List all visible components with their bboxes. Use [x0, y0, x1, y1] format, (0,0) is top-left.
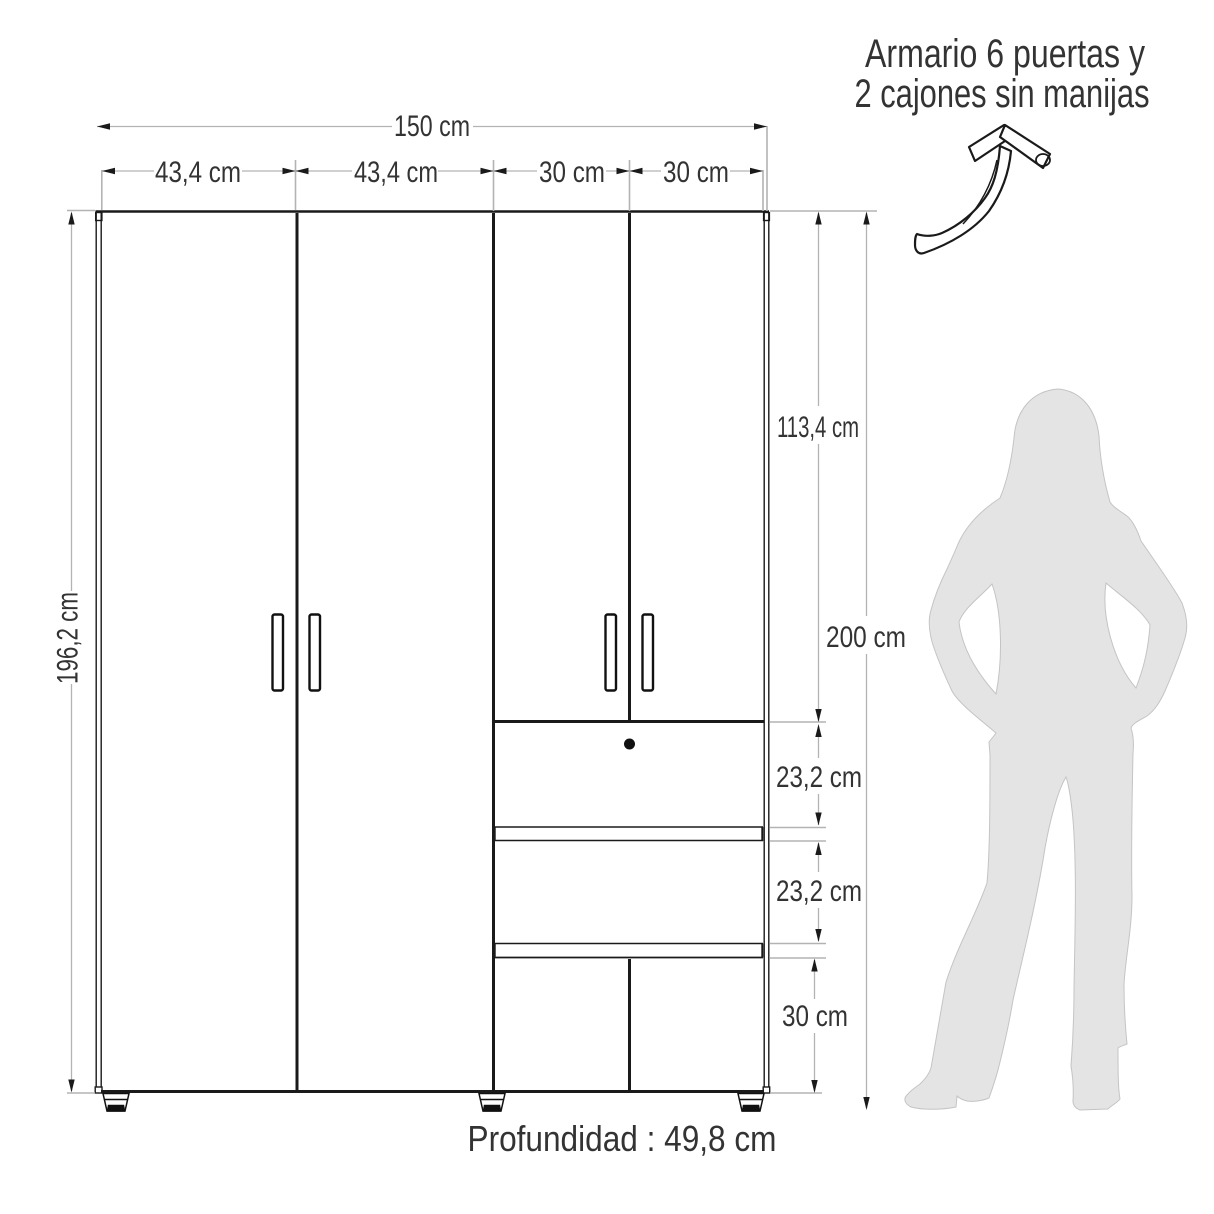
svg-text:43,4 cm: 43,4 cm [354, 156, 438, 189]
svg-text:30 cm: 30 cm [782, 1000, 848, 1033]
svg-text:Armario 6 puertas y: Armario 6 puertas y [865, 32, 1145, 76]
svg-text:2 cajones sin manijas: 2 cajones sin manijas [855, 72, 1150, 116]
svg-text:113,4 cm: 113,4 cm [777, 411, 859, 444]
svg-text:30 cm: 30 cm [539, 156, 605, 189]
svg-text:23,2 cm: 23,2 cm [776, 875, 862, 908]
svg-text:43,4 cm: 43,4 cm [155, 156, 241, 189]
svg-text:Profundidad : 49,8 cm: Profundidad : 49,8 cm [468, 1118, 777, 1159]
svg-text:30 cm: 30 cm [663, 156, 729, 189]
svg-text:23,2 cm: 23,2 cm [776, 761, 862, 794]
svg-text:150 cm: 150 cm [394, 110, 470, 143]
svg-text:196,2 cm: 196,2 cm [52, 592, 85, 684]
svg-text:200 cm: 200 cm [826, 621, 906, 654]
